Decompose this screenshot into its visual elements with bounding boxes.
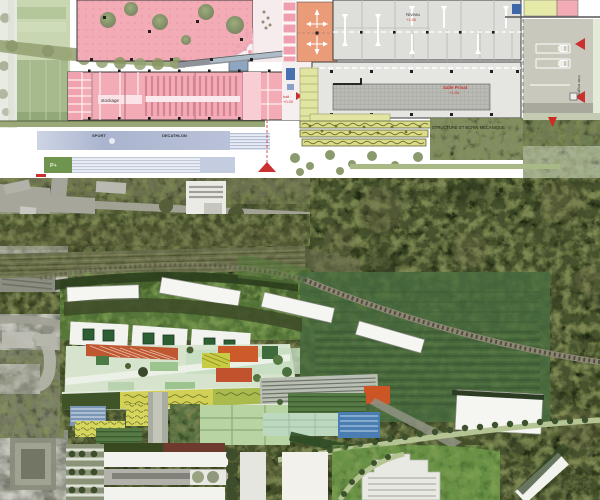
svg-text:+1.00: +1.00 [406,17,417,22]
svg-text:P+: P+ [50,163,57,169]
svg-text:+1.00: +1.00 [449,90,460,95]
svg-text:+0.00: +0.00 [283,99,294,104]
svg-text:DECATHLON: DECATHLON [162,133,187,138]
svg-text:Voie engins: Voie engins [577,75,582,96]
svg-text:SPORT: SPORT [92,133,106,138]
svg-text:stockage: stockage [101,98,120,103]
svg-text:STRUCTURE ET ECRIN MECANIQUE: STRUCTURE ET ECRIN MECANIQUE [432,125,505,130]
